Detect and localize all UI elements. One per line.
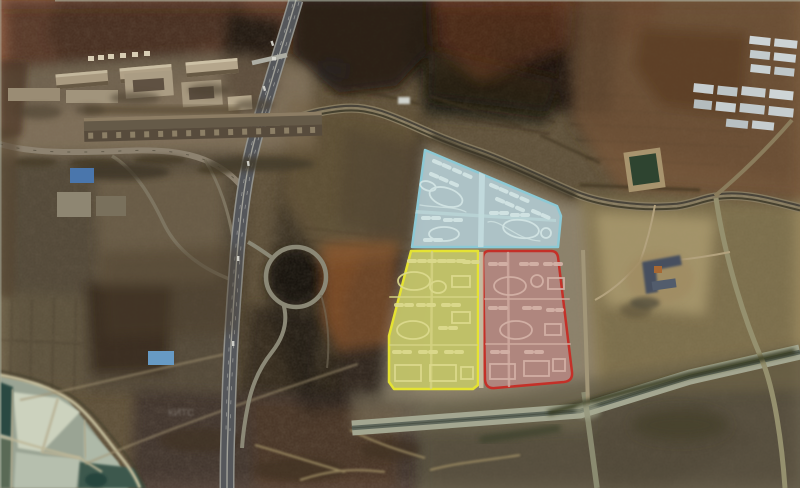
svg-text:КИТС: КИТС: [168, 408, 194, 419]
